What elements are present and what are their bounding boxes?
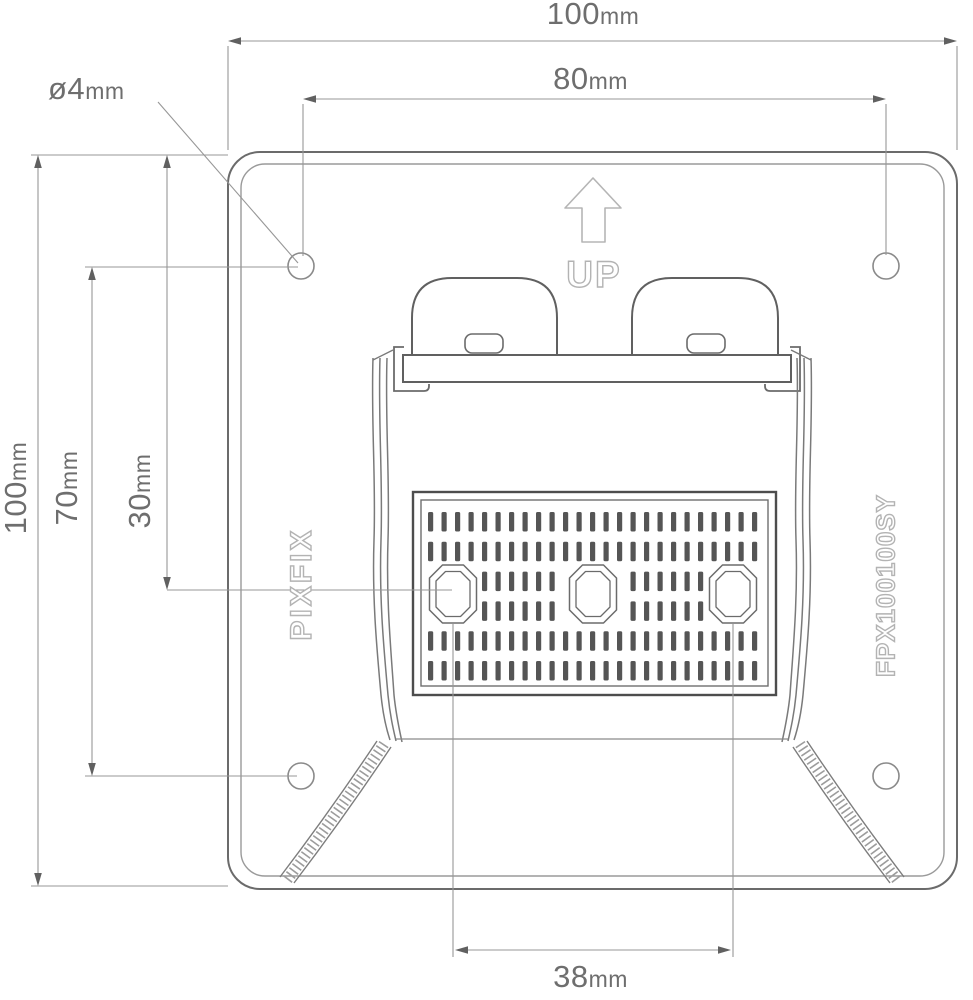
- panel-mount-hole-inner: [576, 572, 610, 617]
- panel-mount-hole-inner: [436, 572, 470, 617]
- dim-hole-spacing-horizontal-label: 80mm: [528, 62, 653, 96]
- hook-slot-left: [465, 334, 503, 353]
- bracket-rail: [403, 355, 791, 382]
- screw-hole-bottom-right: [873, 763, 899, 789]
- dim-slot-spacing-label: 38mm: [528, 960, 653, 994]
- dim-hole-spacing-vertical-label: 70mm: [50, 428, 84, 548]
- brand-logo-text: PIXFIX: [285, 504, 319, 664]
- vented-mount-panel: [413, 492, 776, 695]
- dim-plate-width-label: 100mm: [528, 0, 658, 31]
- panel-mount-hole-inner: [716, 572, 750, 617]
- screw-hole-top-left: [288, 253, 314, 279]
- model-number-text: FPX100100SY: [871, 476, 902, 696]
- dim-plate-width-value: 100: [547, 0, 600, 31]
- hook-slot-right: [687, 334, 725, 353]
- dim-hole-diameter-label: ø4mm: [48, 72, 125, 106]
- dim-plate-height-label: 100mm: [0, 428, 33, 548]
- screw-hole-top-right: [873, 253, 899, 279]
- up-orientation-label: UP: [554, 254, 634, 296]
- dim-top-to-slot-row-label: 30mm: [123, 431, 157, 551]
- technical-drawing-canvas: 100mm 80mm ø4mm 100mm 70mm 30mm 38mm UP …: [0, 0, 973, 1000]
